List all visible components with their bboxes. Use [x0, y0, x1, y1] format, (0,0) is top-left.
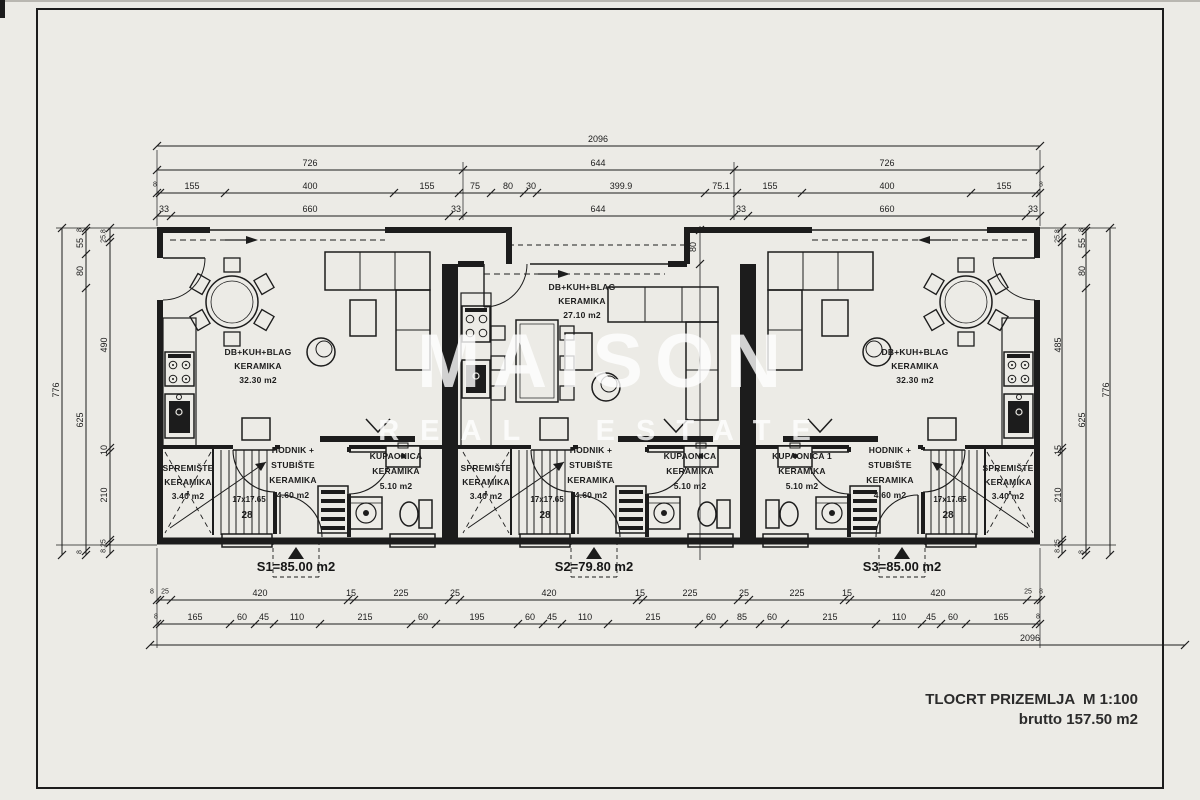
room-label-storage-2: SPREMIŠTEKERAMIKA3.40 m2 [461, 461, 512, 503]
room-label-bath-1: KUPAONICAKERAMIKA5.10 m2 [370, 449, 423, 494]
plan-labels: DB+KUH+BLAGKERAMIKA32.30 m2 SPREMIŠTEKER… [0, 0, 1200, 800]
stair-riser-label-2: 28 [539, 510, 550, 521]
room-label-storage-1: SPREMIŠTEKERAMIKA3.40 m2 [163, 461, 214, 503]
room-label-storage-3: SPREMIŠTEKERAMIKA3.40 m2 [983, 461, 1034, 503]
area-label-s1: S1=85.00 m2 [257, 559, 335, 574]
stair-label-3: 17x17.65 [933, 495, 966, 504]
stair-label-2: 17x17.65 [530, 495, 563, 504]
room-label-living-1: DB+KUH+BLAGKERAMIKA32.30 m2 [225, 345, 292, 387]
room-label-hall-3: HODNIK +STUBIŠTEKERAMIKA4.60 m2 [866, 443, 913, 503]
drawing-title: TLOCRT PRIZEMLJA M 1:100 [925, 690, 1138, 710]
area-label-s2: S2=79.80 m2 [555, 559, 633, 574]
stair-riser-label-1: 28 [241, 510, 252, 521]
room-label-living-3: DB+KUH+BLAGKERAMIKA32.30 m2 [882, 345, 949, 387]
gross-area: brutto 157.50 m2 [925, 710, 1138, 730]
title-block: TLOCRT PRIZEMLJA M 1:100 brutto 157.50 m… [925, 690, 1138, 730]
stair-riser-label-3: 28 [942, 510, 953, 521]
room-label-bath-2: KUPAONICAKERAMIKA5.10 m2 [664, 449, 717, 494]
stair-label-1: 17x17.65 [232, 495, 265, 504]
room-label-bath-3: KUPAONICA 1KERAMIKA5.10 m2 [772, 449, 832, 494]
blueprint-sheet: 20967266447268155400155758030399.975.115… [0, 0, 1200, 800]
room-label-hall-2: HODNIK +STUBIŠTEKERAMIKA4.60 m2 [567, 443, 614, 503]
room-label-hall-1: HODNIK +STUBIŠTEKERAMIKA4.60 m2 [269, 443, 316, 503]
room-label-living-2: DB+KUH+BLAGKERAMIKA27.10 m2 [549, 280, 616, 322]
area-label-s3: S3=85.00 m2 [863, 559, 941, 574]
